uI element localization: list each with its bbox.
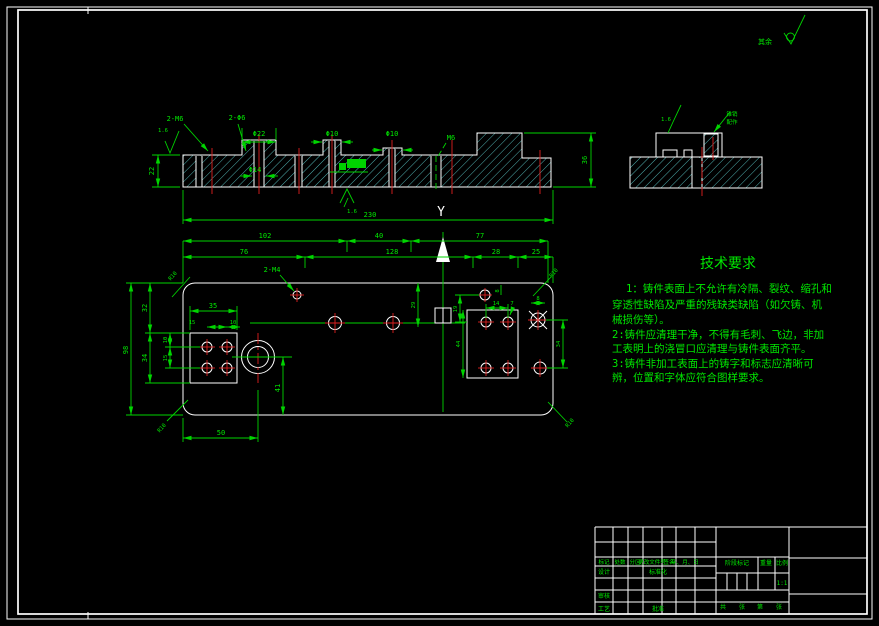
svg-text:1.6: 1.6	[661, 117, 671, 123]
dim-98: 98	[122, 346, 130, 354]
dim-15: 15	[163, 355, 169, 362]
dim-36: 36	[581, 156, 589, 164]
dim-phi22: Φ22	[253, 130, 266, 138]
dim-8b: 8	[495, 289, 501, 292]
dim-15b: 15	[189, 320, 196, 326]
tb-standardize: 标准化	[649, 568, 667, 576]
dim-2m4: 2-M4	[264, 266, 281, 274]
tb-scale: 比例	[776, 559, 788, 567]
dim-m6: M6	[447, 134, 455, 142]
dim-22: 22	[148, 167, 156, 175]
tb-sheet: 张	[739, 603, 745, 611]
dim-76: 76	[240, 248, 248, 256]
section-label: Y	[437, 205, 445, 220]
dim-25: 25	[532, 248, 540, 256]
tb-page: 第	[757, 603, 763, 611]
tech-req-title: 技术要求	[700, 256, 756, 272]
tb-process: 工艺	[598, 605, 610, 613]
cad-canvas: 其余	[0, 0, 879, 626]
dim-phi14: Φ14	[249, 166, 262, 174]
svg-text:1.6: 1.6	[158, 128, 168, 134]
dim-19: 19	[453, 306, 459, 313]
tb-weight: 重量	[760, 559, 772, 567]
tb-stage-mark: 阶段标记	[725, 559, 749, 567]
tb-review: 审核	[598, 592, 610, 600]
dim-10: 10	[163, 337, 169, 344]
tb-header-biaoji: 标记	[598, 558, 610, 566]
tech-req-line-1: 1：铸件表面上不允许有冷隔、裂纹、缩孔和	[626, 282, 832, 295]
dim-phi10b: Φ10	[386, 130, 399, 138]
tb-total: 共	[720, 603, 726, 611]
dim-230: 230	[364, 211, 377, 219]
dim-10b: 10	[230, 320, 237, 326]
dim-29: 29	[411, 302, 417, 309]
dim-32: 32	[141, 304, 149, 312]
dim-phi10a: Φ10	[326, 130, 339, 138]
dim-50: 50	[217, 429, 225, 437]
dim-128: 128	[386, 248, 399, 256]
background	[0, 0, 879, 626]
dim-28: 28	[492, 248, 500, 256]
tb-header-riqi: 年、月、日	[671, 558, 699, 566]
cad-drawing-sheet: 其余	[0, 0, 879, 626]
dim-35: 35	[209, 302, 217, 310]
tb-scale-value: 1:1	[777, 580, 788, 587]
tech-req-line-6: 3:铸件非加工表面上的铸字和标志应清晰可	[612, 357, 814, 370]
dim-8: 8	[536, 296, 539, 302]
tb-header-wenjianhao: 更改文件号	[638, 558, 666, 566]
tb-page2: 张	[776, 603, 782, 611]
svg-text:1.6: 1.6	[347, 209, 357, 215]
dim-44: 44	[456, 340, 462, 347]
dim-34b: 34	[556, 340, 562, 347]
dim-7: 7	[510, 301, 513, 307]
dim-2m6: 2-M6	[167, 115, 184, 123]
remainder-label: 其余	[758, 37, 772, 46]
tech-req-line-3: 械损伤等）。	[612, 313, 670, 326]
dim-40: 40	[375, 232, 383, 240]
tb-header-chushu: 处数	[614, 558, 626, 566]
dim-2phi6: 2-Φ6	[229, 114, 246, 122]
dim-102: 102	[259, 232, 272, 240]
dim-77: 77	[476, 232, 484, 240]
leader-text-1: 锥销	[726, 110, 738, 118]
leader-text-2: 配作	[726, 118, 738, 126]
tech-req-line-4: 2:铸件应清理干净，不得有毛刺、飞边，非加	[612, 328, 824, 341]
dim-41: 41	[274, 384, 282, 392]
dim-34: 34	[141, 354, 149, 362]
tech-req-line-2: 穿透性缺陷及严重的残缺类缺陷（如欠铸、机	[612, 298, 822, 311]
tb-approve: 批准	[652, 605, 664, 613]
tech-req-line-5: 工表明上的浇冒口应清理与铸件表面齐平。	[612, 342, 812, 355]
tech-req-line-7: 辨，位置和字体应符合图样要求。	[612, 371, 770, 384]
tb-design: 设计	[598, 568, 610, 576]
dim-14: 14	[493, 301, 500, 307]
